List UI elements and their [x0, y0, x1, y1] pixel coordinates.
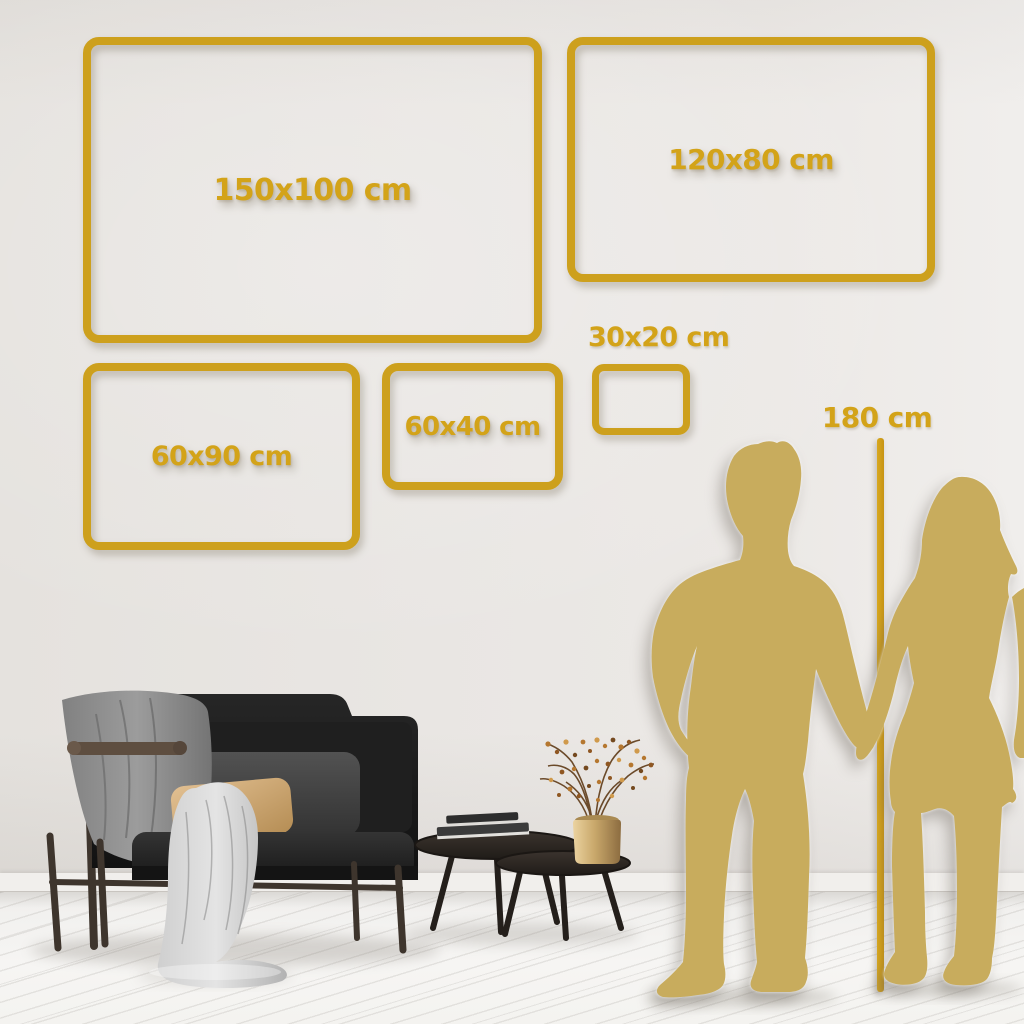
size-frame-60x40: 60x40 cm [382, 363, 563, 490]
baseboard [0, 873, 1024, 892]
size-frame-150x100: 150x100 cm [83, 37, 542, 343]
size-label-150x100: 150x100 cm [213, 173, 411, 208]
size-label-120x80: 120x80 cm [668, 143, 834, 176]
size-frame-30x20 [592, 364, 690, 435]
size-frame-60x90: 60x90 cm [83, 363, 360, 550]
size-label-60x90: 60x90 cm [151, 441, 292, 472]
size-guide-scene: 150x100 cm 120x80 cm 60x90 cm 60x40 cm 3… [0, 0, 1024, 1024]
size-label-60x40: 60x40 cm [405, 412, 541, 442]
floor [0, 892, 1024, 1024]
height-ruler-line [877, 438, 884, 992]
size-frame-120x80: 120x80 cm [567, 37, 935, 282]
height-marker-label: 180 cm [806, 401, 948, 434]
size-label-30x20: 30x20 cm [588, 322, 729, 353]
